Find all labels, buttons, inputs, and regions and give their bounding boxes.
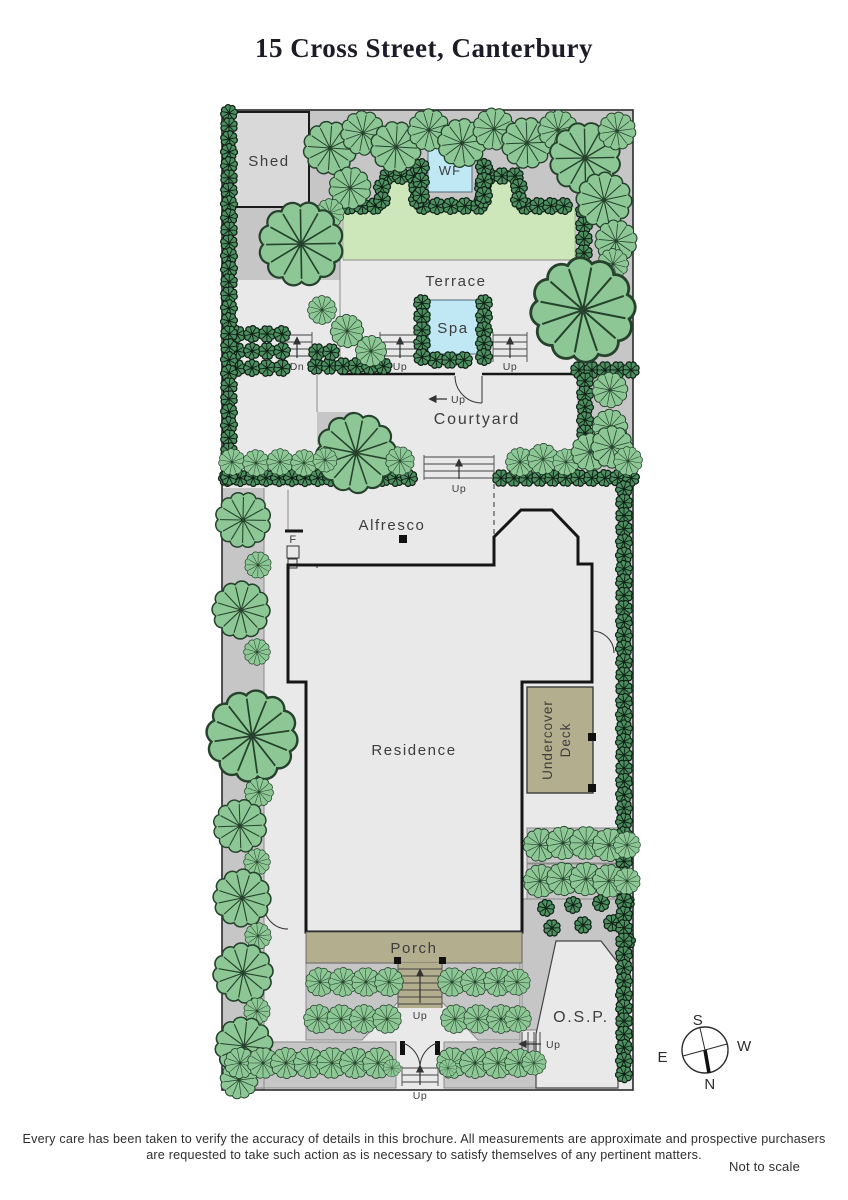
up-label: Up xyxy=(393,361,408,373)
up-label: Up xyxy=(503,361,518,373)
porch-label: Porch xyxy=(390,940,437,957)
compass-w: W xyxy=(737,1038,752,1055)
spa-area: Spa xyxy=(428,300,478,354)
brochure-page: 15 Cross Street, Canterbury Shed xyxy=(0,0,848,1200)
site-plan: 15 Cross Street, Canterbury Shed xyxy=(0,0,848,1200)
dn-label: Dn xyxy=(290,361,305,373)
scale-note: Not to scale xyxy=(729,1159,800,1174)
alfresco-post xyxy=(399,535,407,543)
disclaimer-line1: Every care has been taken to verify the … xyxy=(22,1132,825,1146)
alfresco-label: Alfresco xyxy=(359,517,426,534)
disclaimer-line2: are requested to take such action as is … xyxy=(146,1148,702,1162)
osp-label: O.S.P. xyxy=(553,1009,609,1026)
porch-post xyxy=(439,957,446,964)
page-title: 15 Cross Street, Canterbury xyxy=(255,33,593,63)
deck-post xyxy=(588,733,596,741)
fireplace-footing xyxy=(287,546,299,558)
shed-label: Shed xyxy=(248,153,289,170)
up-label: Up xyxy=(413,1010,428,1022)
compass-north-needle xyxy=(705,1050,709,1073)
up-label: Up xyxy=(451,394,466,406)
compass: S W E N xyxy=(657,1012,752,1093)
shed-area: Shed xyxy=(229,112,309,207)
porch-post xyxy=(394,957,401,964)
deck-post xyxy=(588,784,596,792)
deck-label-2: Deck xyxy=(558,723,573,758)
terrace-label: Terrace xyxy=(425,273,486,290)
up-label: Up xyxy=(452,483,467,495)
fireplace-label: F xyxy=(289,534,296,546)
courtyard-label: Courtyard xyxy=(434,411,520,428)
footer: Every care has been taken to verify the … xyxy=(22,1132,825,1174)
up-label: Up xyxy=(546,1039,561,1051)
compass-s: S xyxy=(693,1012,704,1029)
compass-e: E xyxy=(657,1049,668,1066)
compass-n: N xyxy=(704,1076,715,1093)
spa-label: Spa xyxy=(437,320,469,337)
residence-label: Residence xyxy=(371,742,456,759)
undercover-deck: Undercover Deck xyxy=(527,687,596,793)
deck-label-1: Undercover xyxy=(540,700,555,780)
up-label: Up xyxy=(413,1090,428,1102)
